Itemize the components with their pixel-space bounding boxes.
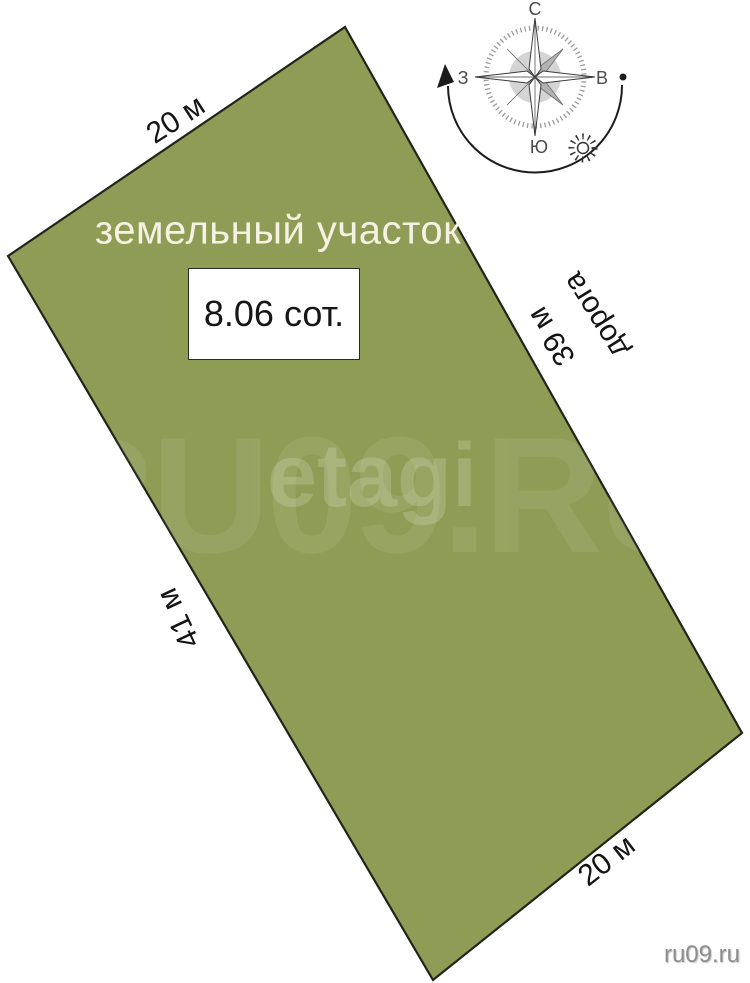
land-plot-diagram: RU09.RU etagi земельный участок 8.06 сот… bbox=[0, 0, 750, 983]
watermark-etagi: etagi bbox=[267, 426, 477, 526]
site-corner-watermark: ru09.ru bbox=[664, 941, 740, 969]
area-box: 8.06 сот. bbox=[188, 268, 360, 360]
compass-arm-midlines bbox=[475, 18, 595, 136]
east-dot-marker bbox=[620, 74, 627, 81]
area-value: 8.06 сот. bbox=[204, 293, 344, 335]
plot-title: земельный участок bbox=[95, 209, 461, 254]
sun-icon bbox=[572, 137, 595, 160]
compass-south-label: Ю bbox=[530, 137, 548, 157]
compass-north-label: С bbox=[529, 0, 542, 19]
compass-east-label: В bbox=[596, 68, 608, 88]
compass-rose: С Ю З В bbox=[425, 0, 640, 178]
compass-west-label: З bbox=[458, 68, 469, 88]
